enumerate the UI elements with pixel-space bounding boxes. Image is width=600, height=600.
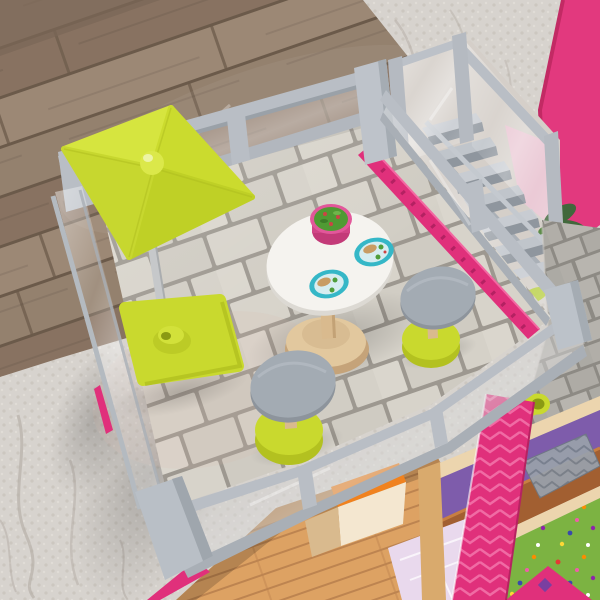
dollhouse-photo (0, 0, 600, 600)
lettuce (333, 211, 341, 215)
knob-highlight (143, 154, 153, 162)
canopy-knob (140, 151, 164, 175)
scene-svg (0, 0, 600, 600)
lettuce (320, 219, 328, 223)
food-broccoli (379, 245, 384, 250)
salad-bowl (310, 204, 352, 245)
tomato (329, 222, 333, 226)
food-broccoli (376, 255, 381, 260)
food-tomato (384, 251, 387, 254)
tomato (336, 215, 340, 219)
food-broccoli (330, 288, 335, 293)
base-pole-hole (161, 332, 171, 340)
salad (314, 207, 348, 231)
tomato (323, 212, 327, 216)
food-broccoli (333, 278, 338, 283)
